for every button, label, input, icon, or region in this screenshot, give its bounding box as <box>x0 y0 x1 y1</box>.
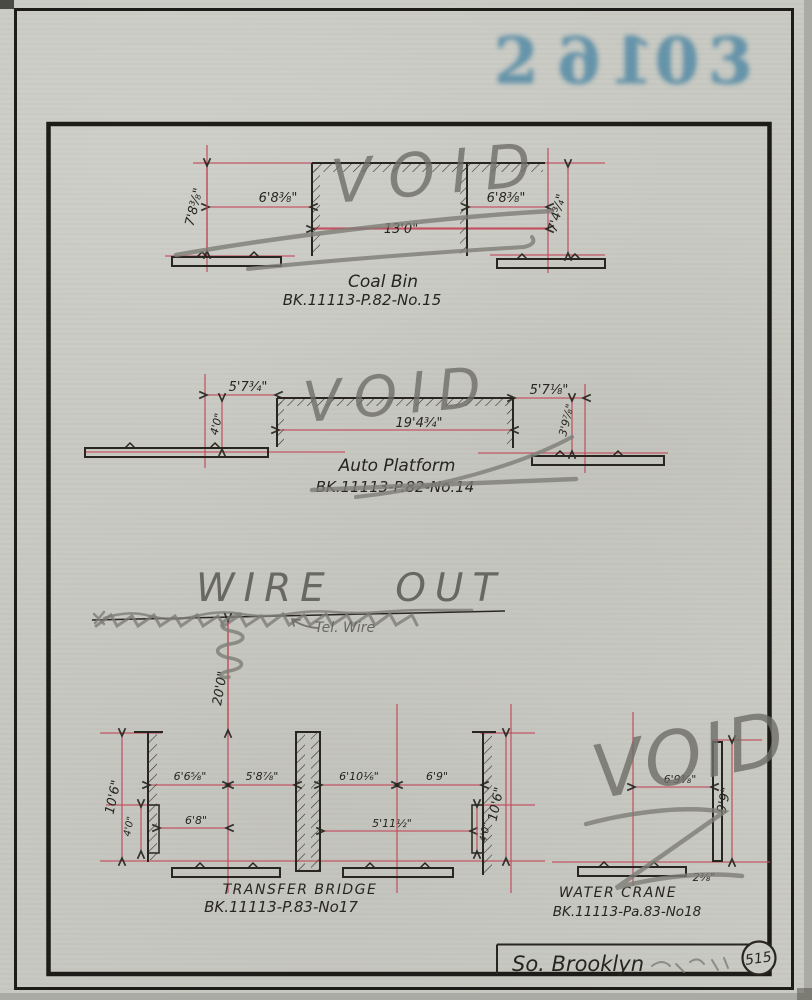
auto-platform-diagram: 5'7¾" 4'0" 19'4¾" 5'7⅛" 3'9⅞" Auto Platf… <box>85 355 668 497</box>
tb-dim-step-left: 4'0" <box>122 816 137 838</box>
wire-out-note: WIRE OUT <box>196 566 505 611</box>
approval-stamp: 26103 <box>494 24 762 99</box>
auto-void-note: VOID <box>301 355 496 436</box>
tb-dim-span-3: 6'10⅙" <box>339 770 379 783</box>
water-crane-diagram: 6'9⅜" 9'9" 2⅜" WATER CRANE BK.11113-Pa.8… <box>552 695 794 920</box>
scanned-drawing-page: 7'8⅜" 6'8⅜" 13'0" 6'8⅜" 7'4¾" Coal Bin B… <box>0 0 812 1000</box>
auto-dim-height-right: 3'9⅞" <box>556 403 577 438</box>
water-crane-ref: BK.11113-Pa.83-No18 <box>553 904 702 920</box>
transfer-bridge-ref: BK.11113-P.83-No17 <box>204 898 358 916</box>
tel-wire-label: Tel. Wire <box>315 620 375 636</box>
coal-bin-ref: BK.11113-P.82-No.15 <box>283 291 442 309</box>
erased-pencil-marks <box>652 958 728 972</box>
coal-bin-title: Coal Bin <box>348 272 418 292</box>
water-void-note: VOID <box>585 695 794 817</box>
pencil-strike <box>248 237 533 269</box>
coal-dim-offset-left: 6'8⅜" <box>259 191 298 206</box>
drawing-canvas: 7'8⅜" 6'8⅜" 13'0" 6'8⅜" 7'4¾" Coal Bin B… <box>0 0 812 1000</box>
pencil-wave <box>104 610 472 619</box>
tb-dim-span-4: 6'9" <box>426 770 448 783</box>
tb-dim-lower-right: 5'11½" <box>372 817 412 830</box>
rail-platform <box>578 862 686 876</box>
transfer-bridge-diagram: 6'6⅝" 5'8⅞" 6'10⅙" 6'9" 6'8" 5'11½" 10'6… <box>100 704 545 916</box>
title-box: So. Brooklyn <box>497 945 770 977</box>
auto-platform-title: Auto Platform <box>338 456 456 476</box>
coal-bin-diagram: 7'8⅜" 6'8⅜" 13'0" 6'8⅜" 7'4¾" Coal Bin B… <box>165 129 605 309</box>
coal-dim-height-left: 7'8⅜" <box>183 187 207 228</box>
auto-dim-offset-right: 5'7⅛" <box>530 383 569 398</box>
tb-dim-span-1: 6'6⅝" <box>174 770 207 783</box>
page-number-circle: 515 <box>743 942 776 975</box>
tb-dim-height-left: 10'6" <box>103 779 125 816</box>
tb-dim-span-2: 5'8⅞" <box>246 770 279 783</box>
tb-dim-lower-left: 6'8" <box>185 814 207 827</box>
location-label: So. Brooklyn <box>512 952 644 976</box>
auto-dim-height-left: 4'0" <box>208 412 226 437</box>
transfer-bridge-title: TRANSFER BRIDGE <box>223 882 378 898</box>
auto-dim-offset-left: 5'7¾" <box>229 380 268 395</box>
